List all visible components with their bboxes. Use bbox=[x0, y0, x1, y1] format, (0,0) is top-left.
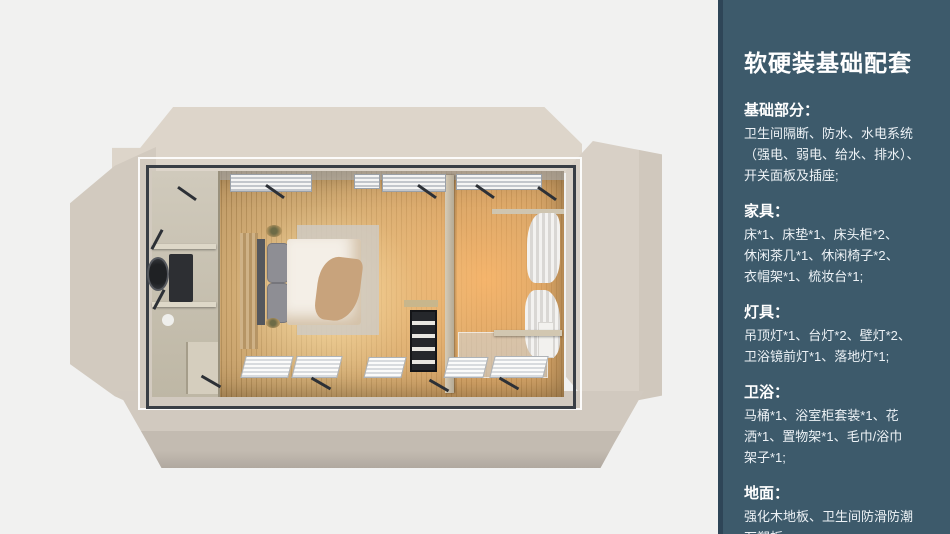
bathroom-shelf bbox=[152, 302, 216, 307]
floor-vent bbox=[443, 357, 488, 378]
bathroom-shelf bbox=[152, 244, 216, 249]
section-heading: 卫浴： bbox=[744, 381, 936, 402]
bed-pillow bbox=[267, 283, 289, 323]
minibar-shelf bbox=[404, 300, 438, 307]
section-body: 吊顶灯*1、台灯*2、壁灯*2、 卫浴镜前灯*1、落地灯*1; bbox=[744, 325, 936, 367]
panel-title: 软硬装基础配套 bbox=[744, 44, 936, 78]
spec-section-basics: 基础部分： 卫生间隔断、防水、水电系统 （强电、弱电、给水、排水）、 开关面板及… bbox=[744, 99, 936, 186]
floor-vent bbox=[240, 356, 293, 378]
shower-head bbox=[162, 314, 174, 326]
section-heading: 灯具： bbox=[744, 301, 936, 322]
towel-rack bbox=[538, 322, 554, 358]
slide: 软硬装基础配套 基础部分： 卫生间隔断、防水、水电系统 （强电、弱电、给水、排水… bbox=[0, 0, 950, 534]
section-heading: 家具： bbox=[744, 200, 936, 221]
bathroom-vanity-cabinet bbox=[169, 254, 193, 302]
nightstand-plant bbox=[266, 318, 280, 328]
spec-section-flooring: 地面： 强化木地板、卫生间防滑防潮 石塑板; bbox=[744, 482, 936, 534]
wall-shelf bbox=[494, 330, 562, 336]
ceiling-vent bbox=[382, 174, 446, 192]
spec-section-sanitary: 卫浴： 马桶*1、浴室柜套装*1、花 洒*1、置物架*1、毛巾/浴巾 架子*1; bbox=[744, 381, 936, 468]
spec-section-furniture: 家具： 床*1、床垫*1、床头柜*2、 休闲茶几*1、休闲椅子*2、 衣帽架*1… bbox=[744, 200, 936, 287]
bed-pillow bbox=[267, 243, 289, 283]
headboard-wall-panel bbox=[240, 233, 258, 349]
bathroom-sink bbox=[147, 257, 169, 291]
section-body: 卫生间隔断、防水、水电系统 （强电、弱电、给水、排水）、 开关面板及插座; bbox=[744, 123, 936, 186]
section-heading: 基础部分： bbox=[744, 99, 936, 120]
nightstand-plant bbox=[266, 225, 282, 237]
spec-panel: 软硬装基础配套 基础部分： 卫生间隔断、防水、水电系统 （强电、弱电、给水、排水… bbox=[718, 0, 950, 534]
floor-vent bbox=[363, 357, 406, 378]
floor-vent bbox=[291, 356, 342, 378]
curtain bbox=[527, 213, 560, 283]
ceiling-vent bbox=[354, 174, 380, 189]
section-body: 床*1、床垫*1、床头柜*2、 休闲茶几*1、休闲椅子*2、 衣帽架*1、梳妆台… bbox=[744, 224, 936, 287]
floor-vent bbox=[489, 356, 548, 378]
bed-headboard bbox=[257, 239, 265, 325]
section-body: 强化木地板、卫生间防滑防潮 石塑板; bbox=[744, 506, 936, 534]
shower-base bbox=[186, 342, 218, 394]
spec-section-lighting: 灯具： 吊顶灯*1、台灯*2、壁灯*2、 卫浴镜前灯*1、落地灯*1; bbox=[744, 301, 936, 367]
section-heading: 地面： bbox=[744, 482, 936, 503]
ceiling-vent bbox=[456, 174, 542, 190]
minibar-cabinet bbox=[410, 310, 437, 372]
section-body: 马桶*1、浴室柜套装*1、花 洒*1、置物架*1、毛巾/浴巾 架子*1; bbox=[744, 405, 936, 468]
